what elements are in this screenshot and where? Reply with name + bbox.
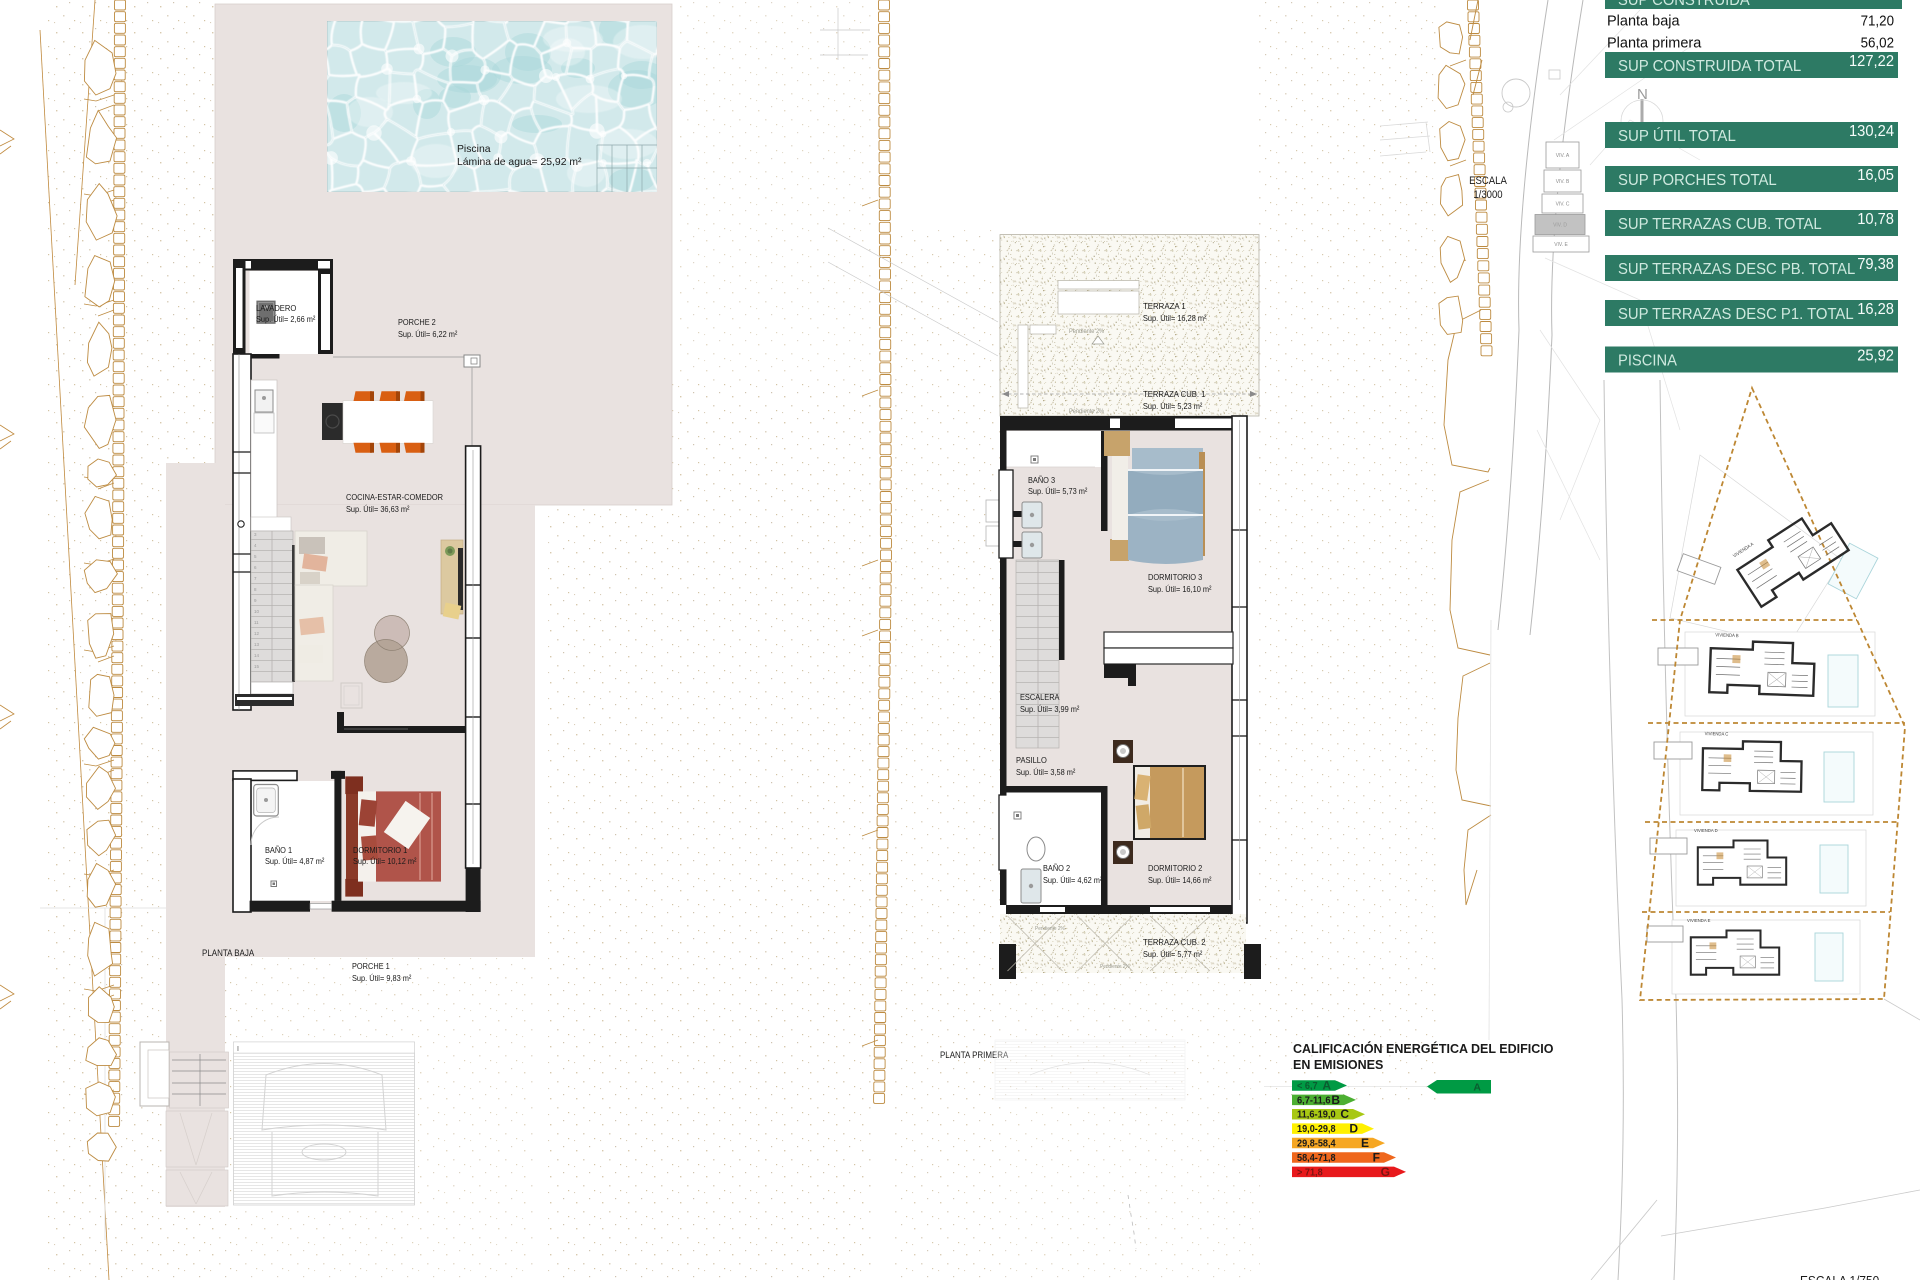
svg-text:SUP TERRAZAS DESC P1. TOTAL: SUP TERRAZAS DESC P1. TOTAL xyxy=(1618,306,1854,323)
svg-text:VIVIENDA B: VIVIENDA B xyxy=(1715,632,1739,639)
svg-text:SUP PORCHES TOTAL: SUP PORCHES TOTAL xyxy=(1618,172,1777,189)
svg-text:14: 14 xyxy=(254,653,260,658)
svg-text:ESCALA 1/750: ESCALA 1/750 xyxy=(1800,1274,1879,1280)
svg-text:F: F xyxy=(1373,1150,1380,1164)
svg-text:PORCHE 2: PORCHE 2 xyxy=(398,317,436,327)
svg-text:VIV. B: VIV. B xyxy=(1556,179,1570,185)
svg-text:> 71,8: > 71,8 xyxy=(1297,1166,1323,1178)
svg-text:Sup. Útil= 4,62 m²: Sup. Útil= 4,62 m² xyxy=(1043,875,1103,885)
svg-text:COCINA-ESTAR-COMEDOR: COCINA-ESTAR-COMEDOR xyxy=(346,492,443,502)
svg-text:25,92: 25,92 xyxy=(1857,348,1894,365)
svg-text:G: G xyxy=(1381,1165,1390,1179)
svg-text:Pendiente 2%: Pendiente 2% xyxy=(1069,328,1104,335)
svg-text:Pendiente 2%: Pendiente 2% xyxy=(1069,408,1104,415)
svg-text:A: A xyxy=(1473,1082,1481,1094)
svg-text:Piscina: Piscina xyxy=(457,144,491,155)
svg-text:DORMITORIO 2: DORMITORIO 2 xyxy=(1148,863,1202,873)
svg-text:Sup. Útil= 3,99 m²: Sup. Útil= 3,99 m² xyxy=(1020,704,1080,714)
svg-text:VIV. D: VIV. D xyxy=(1553,223,1567,229)
svg-text:Sup. Útil= 5,73 m²: Sup. Útil= 5,73 m² xyxy=(1028,486,1088,496)
svg-text:Sup. Útil= 10,12 m²: Sup. Útil= 10,12 m² xyxy=(353,856,417,866)
svg-text:SUP CONSTRUIDA: SUP CONSTRUIDA xyxy=(1618,0,1750,9)
svg-text:VIVIENDA D: VIVIENDA D xyxy=(1694,828,1718,834)
svg-text:Sup. Útil= 16,10 m²: Sup. Útil= 16,10 m² xyxy=(1148,584,1212,594)
svg-text:SUP TERRAZAS DESC PB. TOTAL: SUP TERRAZAS DESC PB. TOTAL xyxy=(1618,261,1855,278)
svg-text:Sup. Útil= 5,23 m²: Sup. Útil= 5,23 m² xyxy=(1143,401,1203,411)
svg-text:127,22: 127,22 xyxy=(1849,53,1894,70)
svg-text:CALIFICACIÓN ENERGÉTICA DEL ED: CALIFICACIÓN ENERGÉTICA DEL EDIFICIO xyxy=(1293,1041,1554,1056)
svg-text:PISCINA: PISCINA xyxy=(1618,353,1677,370)
svg-text:TERRAZA 1: TERRAZA 1 xyxy=(1143,301,1186,311)
svg-text:Sup. Útil= 5,77 m²: Sup. Útil= 5,77 m² xyxy=(1143,949,1203,959)
svg-text:Lámina de agua= 25,92 m²: Lámina de agua= 25,92 m² xyxy=(457,157,582,168)
svg-text:VIV. C: VIV. C xyxy=(1556,202,1570,208)
svg-text:TERRAZA CUB. 2: TERRAZA CUB. 2 xyxy=(1143,937,1206,947)
svg-text:BAÑO 1: BAÑO 1 xyxy=(265,845,292,855)
svg-text:< 6,7: < 6,7 xyxy=(1297,1080,1318,1092)
svg-text:B: B xyxy=(1331,1093,1340,1107)
svg-text:Pendiente 2%: Pendiente 2% xyxy=(1035,926,1065,932)
svg-text:A: A xyxy=(1322,1078,1331,1092)
svg-text:C: C xyxy=(1340,1107,1349,1121)
svg-text:DORMITORIO 1: DORMITORIO 1 xyxy=(353,845,407,855)
svg-text:PORCHE 1: PORCHE 1 xyxy=(352,961,390,971)
svg-text:ESCALERA: ESCALERA xyxy=(1020,692,1060,702)
svg-text:SUP ÚTIL TOTAL: SUP ÚTIL TOTAL xyxy=(1618,126,1736,145)
svg-text:BAÑO 3: BAÑO 3 xyxy=(1028,475,1055,485)
svg-text:SUP CONSTRUIDA TOTAL: SUP CONSTRUIDA TOTAL xyxy=(1618,58,1801,75)
svg-text:Sup. Útil= 16,28 m²: Sup. Útil= 16,28 m² xyxy=(1143,313,1207,323)
svg-text:10: 10 xyxy=(254,609,260,614)
svg-text:58,4-71,8: 58,4-71,8 xyxy=(1297,1152,1336,1164)
svg-text:10,78: 10,78 xyxy=(1857,211,1894,228)
svg-text:Sup. Útil= 14,66 m²: Sup. Útil= 14,66 m² xyxy=(1148,875,1212,885)
svg-text:VIV. A: VIV. A xyxy=(1556,153,1570,159)
svg-text:1/3000: 1/3000 xyxy=(1473,189,1502,201)
svg-text:I: I xyxy=(237,1046,239,1053)
svg-text:29,8-58,4: 29,8-58,4 xyxy=(1297,1138,1336,1150)
svg-text:Planta primera: Planta primera xyxy=(1607,36,1702,52)
svg-text:ESCALA: ESCALA xyxy=(1469,175,1507,187)
svg-text:Sup. Útil= 6,22 m²: Sup. Útil= 6,22 m² xyxy=(398,329,458,339)
svg-text:71,20: 71,20 xyxy=(1861,14,1894,30)
svg-text:VIVIENDA E: VIVIENDA E xyxy=(1687,918,1710,924)
svg-text:VIVIENDA C: VIVIENDA C xyxy=(1705,731,1729,737)
svg-text:Pendiente 2%: Pendiente 2% xyxy=(1100,964,1130,970)
svg-text:16,05: 16,05 xyxy=(1857,167,1894,184)
svg-text:VIV. E: VIV. E xyxy=(1554,242,1568,248)
svg-text:DORMITORIO 3: DORMITORIO 3 xyxy=(1148,572,1202,582)
svg-text:TERRAZA CUB. 1: TERRAZA CUB. 1 xyxy=(1143,389,1206,399)
svg-text:SUP TERRAZAS CUB. TOTAL: SUP TERRAZAS CUB. TOTAL xyxy=(1618,216,1822,233)
svg-text:16,28: 16,28 xyxy=(1857,301,1894,318)
svg-text:LAVADERO: LAVADERO xyxy=(256,303,297,313)
svg-text:6,7-11,6: 6,7-11,6 xyxy=(1297,1094,1331,1106)
svg-text:Sup. Útil= 4,87 m²: Sup. Útil= 4,87 m² xyxy=(265,856,325,866)
svg-text:13: 13 xyxy=(254,642,260,647)
svg-text:130,24: 130,24 xyxy=(1849,123,1894,140)
svg-text:12: 12 xyxy=(254,631,260,636)
svg-text:56,02: 56,02 xyxy=(1861,36,1894,52)
svg-text:Sup. Útil= 36,63 m²: Sup. Útil= 36,63 m² xyxy=(346,504,410,514)
svg-text:Sup. Útil= 2,66 m²: Sup. Útil= 2,66 m² xyxy=(256,314,316,324)
svg-text:PASILLO: PASILLO xyxy=(1016,755,1047,765)
svg-text:Planta baja: Planta baja xyxy=(1607,14,1680,30)
svg-text:Sup. Útil= 3,58 m²: Sup. Útil= 3,58 m² xyxy=(1016,767,1076,777)
svg-text:D: D xyxy=(1349,1122,1358,1136)
svg-text:PLANTA BAJA: PLANTA BAJA xyxy=(202,948,254,958)
svg-text:19,0-29,8: 19,0-29,8 xyxy=(1297,1123,1336,1135)
svg-text:BAÑO 2: BAÑO 2 xyxy=(1043,863,1070,873)
svg-text:79,38: 79,38 xyxy=(1857,256,1894,273)
svg-text:15: 15 xyxy=(254,664,260,669)
svg-text:EN EMISIONES: EN EMISIONES xyxy=(1293,1058,1383,1072)
svg-text:11: 11 xyxy=(254,620,259,625)
svg-text:11,6-19,0: 11,6-19,0 xyxy=(1297,1109,1336,1121)
svg-text:E: E xyxy=(1361,1136,1369,1150)
svg-text:Sup. Útil= 9,83 m²: Sup. Útil= 9,83 m² xyxy=(352,973,412,983)
